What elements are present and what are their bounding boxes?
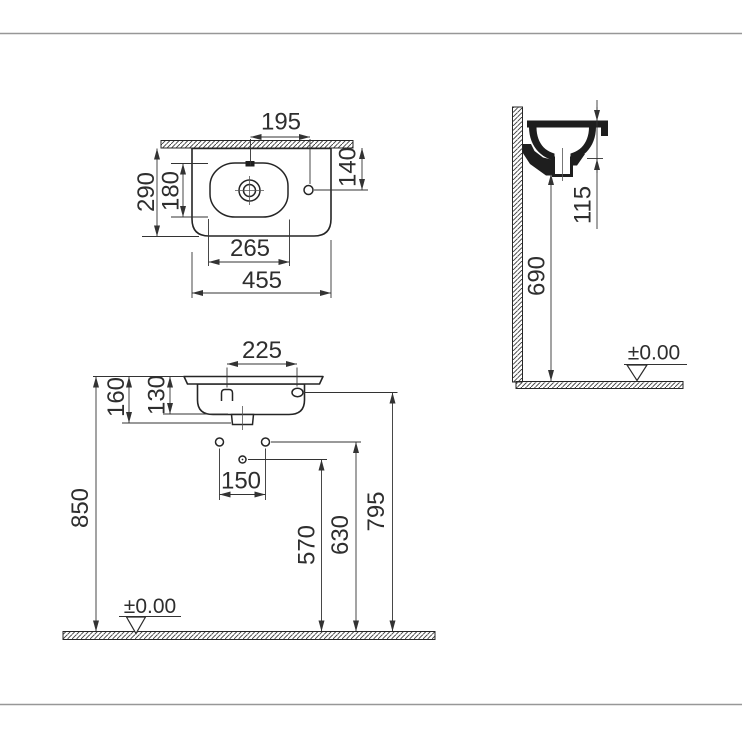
- datum-triangle-side: [627, 365, 647, 381]
- dim-label-160: 160: [103, 377, 130, 417]
- fixing-hole-left: [216, 438, 224, 446]
- dim-label-115: 115: [570, 186, 597, 224]
- basin-rim-front: [184, 377, 323, 385]
- dim-label-795: 795: [363, 491, 390, 531]
- dim-label-225: 225: [242, 337, 282, 364]
- datum-label-side: ±0.00: [628, 342, 680, 365]
- dim-label-570: 570: [294, 525, 321, 565]
- side-wall-hatch: [513, 107, 523, 382]
- side-view: 115 690 ±0.00: [513, 100, 688, 389]
- plan-wall-hatch: [161, 141, 353, 149]
- front-view: ±0.00 225 160 130 150 850 570 630 795: [63, 337, 435, 640]
- dim-label-195: 195: [261, 109, 301, 136]
- front-floor-hatch: [63, 632, 435, 640]
- dim-label-130: 130: [144, 375, 171, 415]
- fixing-hole-lower-dot: [242, 459, 244, 461]
- dim-label-150: 150: [221, 468, 261, 495]
- dim-label-140: 140: [335, 147, 362, 187]
- basin-section-right-wall: [571, 154, 585, 166]
- datum-label-front: ±0.00: [124, 595, 176, 618]
- dim-label-690: 690: [524, 256, 551, 296]
- dim-label-455: 455: [242, 267, 282, 294]
- dim-label-850: 850: [67, 488, 94, 528]
- fixing-hole-right: [262, 438, 270, 446]
- dim-label-630: 630: [327, 515, 354, 555]
- dim-label-290: 290: [133, 172, 160, 212]
- dim-label-180: 180: [158, 171, 185, 211]
- side-floor-hatch: [516, 382, 683, 389]
- plan-view: 195 140 290 180 265 455: [133, 109, 368, 299]
- dim-label-265: 265: [230, 235, 270, 262]
- basin-body-front: [198, 384, 305, 415]
- faucet-mark: [246, 161, 255, 167]
- washbasin-technical-drawing: 195 140 290 180 265 455 115 690 ±0.00: [0, 0, 742, 742]
